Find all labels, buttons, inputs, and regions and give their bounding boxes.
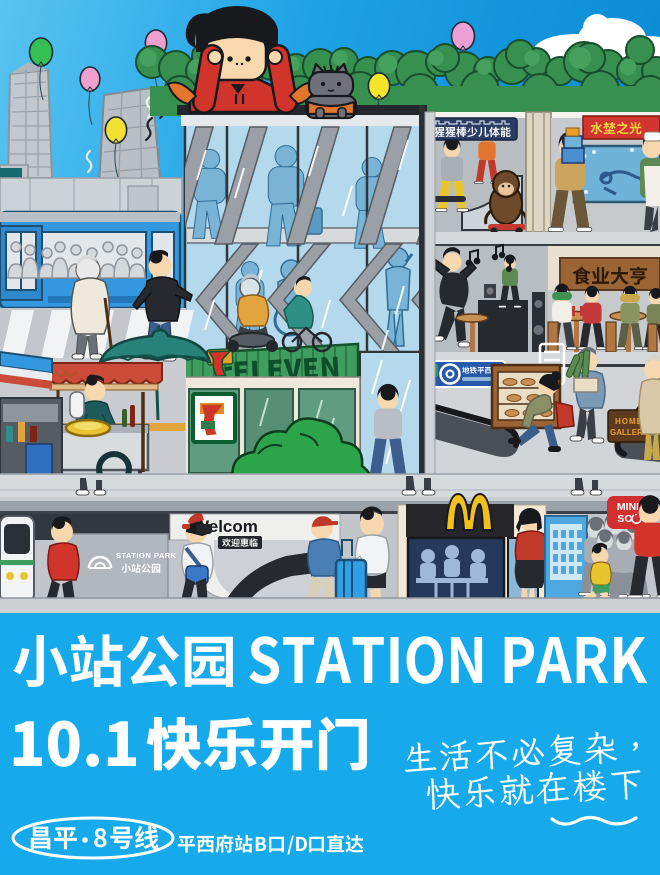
- svg-text:SO: SO: [617, 513, 632, 525]
- svg-text:STATION PARK: STATION PARK: [116, 551, 177, 560]
- svg-text:MINI: MINI: [617, 501, 639, 513]
